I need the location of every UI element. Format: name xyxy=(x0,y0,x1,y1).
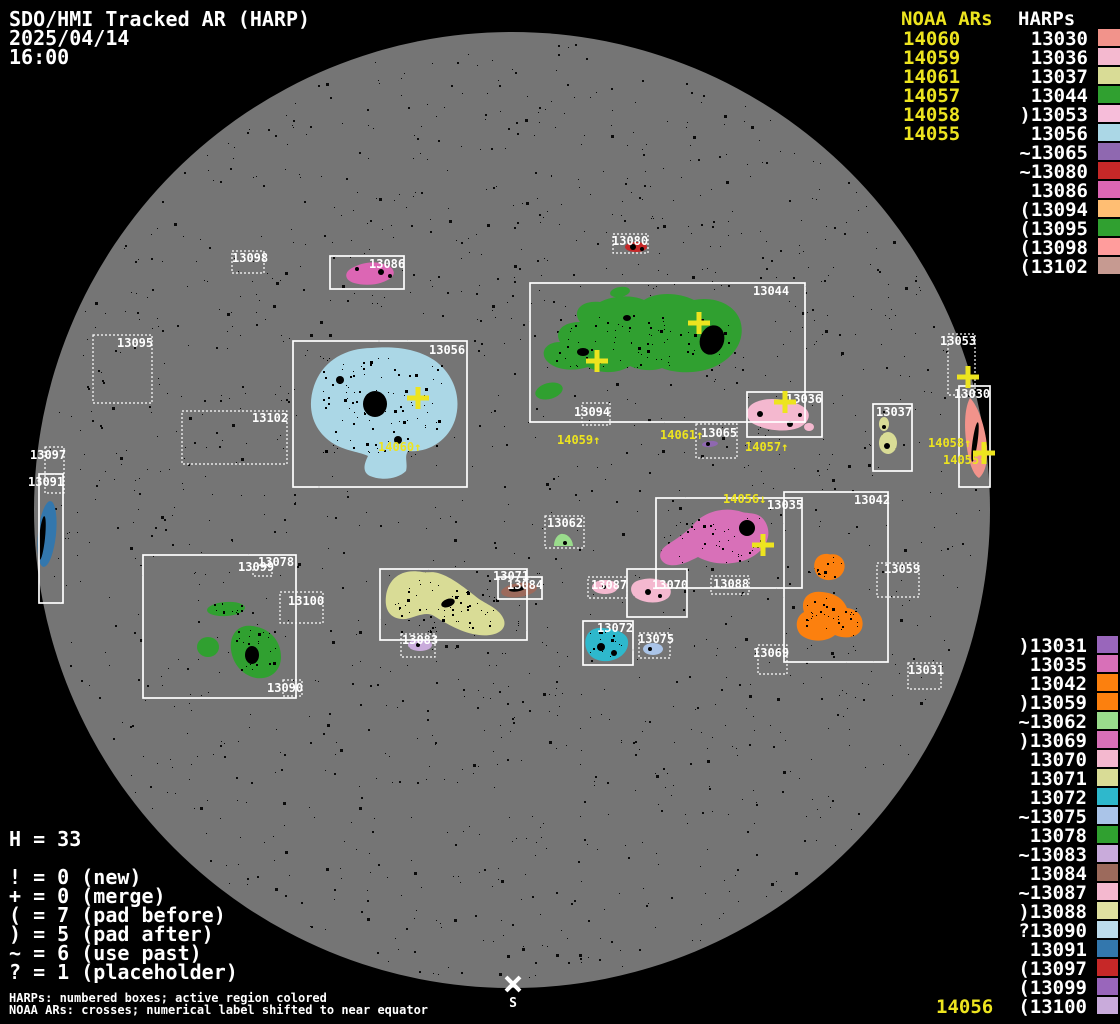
speckle xyxy=(487,224,490,227)
speckle xyxy=(641,444,642,445)
speckle xyxy=(105,313,106,314)
sunspot-speckle xyxy=(559,352,561,354)
speckle xyxy=(435,507,436,508)
speckle xyxy=(736,748,737,749)
speckle xyxy=(855,415,856,416)
speckle xyxy=(579,954,582,957)
speckle xyxy=(153,556,154,557)
speckle xyxy=(539,290,540,291)
sunspot-speckle xyxy=(719,541,720,542)
sunspot-speckle xyxy=(575,315,576,316)
speckle xyxy=(508,504,509,505)
speckle xyxy=(689,676,691,678)
sunspot-speckle xyxy=(433,379,434,380)
speckle xyxy=(413,274,415,276)
sunspot-speckle xyxy=(270,651,271,652)
speckle xyxy=(407,665,408,666)
sunspot-speckle xyxy=(363,362,365,364)
sunspot-speckle xyxy=(667,339,668,340)
speckle xyxy=(332,476,333,477)
speckle xyxy=(839,695,840,696)
speckle xyxy=(883,764,884,765)
speckle xyxy=(903,444,905,446)
speckle xyxy=(834,488,836,490)
speckle xyxy=(304,201,306,203)
sunspot-speckle xyxy=(273,662,276,665)
legend-swatch-13100 xyxy=(1097,997,1118,1014)
speckle xyxy=(377,952,379,954)
speckle xyxy=(324,235,326,237)
speckle xyxy=(468,238,469,239)
speckle xyxy=(724,115,727,118)
speckle xyxy=(920,290,921,291)
speckle xyxy=(479,872,480,873)
speckle xyxy=(515,72,517,74)
speckle xyxy=(547,627,548,628)
sunspot-speckle xyxy=(369,420,370,421)
speckle xyxy=(753,716,754,717)
speckle xyxy=(493,683,494,684)
speckle xyxy=(520,339,521,340)
speckle xyxy=(162,685,163,686)
speckle xyxy=(194,808,195,809)
speckle xyxy=(858,210,859,211)
speckle xyxy=(721,285,722,286)
speckle xyxy=(115,350,117,352)
speckle xyxy=(366,581,367,582)
sunspot-speckle xyxy=(409,620,410,621)
speckle xyxy=(442,315,444,317)
sunspot-speckle xyxy=(364,413,366,415)
speckle xyxy=(528,557,530,559)
speckle xyxy=(256,324,258,326)
speckle xyxy=(216,347,218,349)
speckle xyxy=(648,903,649,904)
sunspot-speckle xyxy=(676,525,677,526)
speckle xyxy=(586,58,588,60)
speckle xyxy=(680,522,681,523)
speckle xyxy=(676,681,678,683)
speckle xyxy=(817,470,819,472)
speckle xyxy=(896,591,897,592)
speckle xyxy=(546,645,547,646)
speckle xyxy=(502,653,503,654)
speckle xyxy=(367,918,370,921)
speckle xyxy=(263,185,265,187)
speckle xyxy=(532,524,533,525)
speckle xyxy=(519,605,520,606)
speckle xyxy=(790,771,791,772)
harp-label-13087: 13087 xyxy=(591,578,627,592)
sunspot-speckle xyxy=(637,367,638,368)
sunspot-speckle xyxy=(333,445,334,446)
speckle xyxy=(433,973,434,974)
speckle xyxy=(587,844,588,845)
sunspot-speckle xyxy=(432,403,433,404)
sunspot-speckle xyxy=(425,425,426,426)
speckle xyxy=(512,924,514,926)
sunspot-speckle xyxy=(660,330,663,333)
sunspot-speckle xyxy=(668,362,669,363)
speckle xyxy=(514,281,516,283)
speckle xyxy=(671,897,673,899)
speckle xyxy=(690,145,691,146)
speckle xyxy=(375,62,376,63)
speckle xyxy=(433,560,434,561)
sunspot-speckle xyxy=(238,631,240,633)
speckle xyxy=(201,695,202,696)
speckle xyxy=(514,227,516,229)
speckle xyxy=(878,467,879,468)
sunspot-speckle xyxy=(640,364,642,366)
speckle xyxy=(656,853,657,854)
speckle xyxy=(728,235,729,236)
speckle xyxy=(321,176,322,177)
speckle xyxy=(705,893,706,894)
speckle xyxy=(848,653,849,654)
speckle xyxy=(336,742,337,743)
sunspot-speckle xyxy=(456,590,458,592)
speckle xyxy=(411,456,412,457)
speckle xyxy=(865,767,866,768)
speckle xyxy=(539,122,540,123)
harp-label-13102: 13102 xyxy=(252,411,288,425)
harp-label-13100: 13100 xyxy=(288,594,324,608)
speckle xyxy=(726,181,729,184)
sunspot-speckle xyxy=(641,354,642,355)
speckle xyxy=(347,496,349,498)
speckle xyxy=(122,722,123,723)
sunspot-speckle xyxy=(679,556,680,557)
speckle xyxy=(886,367,888,369)
harp-label-13053: 13053 xyxy=(940,334,976,348)
sunspot-speckle xyxy=(427,412,428,413)
speckle xyxy=(538,112,539,113)
speckle xyxy=(750,684,751,685)
speckle xyxy=(252,612,254,614)
speckle xyxy=(472,466,473,467)
sunspot-speckle xyxy=(250,664,251,665)
speckle xyxy=(655,927,656,928)
speckle xyxy=(361,911,363,913)
speckle xyxy=(397,707,398,708)
speckle xyxy=(760,277,762,279)
speckle xyxy=(268,129,270,131)
speckle xyxy=(597,243,599,245)
speckle xyxy=(559,666,560,667)
sunspot-speckle xyxy=(481,610,482,611)
sunspot-speckle xyxy=(482,594,484,596)
speckle xyxy=(216,432,218,434)
speckle xyxy=(519,268,521,270)
sunspot-speckle xyxy=(599,317,600,318)
noaa-disk-label-14060: 14060↑ xyxy=(378,440,421,454)
sunspot-speckle xyxy=(403,421,406,424)
speckle xyxy=(493,751,494,752)
speckle xyxy=(228,652,229,653)
speckle xyxy=(597,467,598,468)
speckle xyxy=(581,694,582,695)
speckle xyxy=(754,823,755,824)
speckle xyxy=(476,293,478,295)
speckle xyxy=(621,742,622,743)
speckle xyxy=(693,136,696,139)
speckle xyxy=(553,301,555,303)
speckle xyxy=(551,175,552,176)
speckle xyxy=(782,791,784,793)
speckle xyxy=(411,225,413,227)
speckle xyxy=(374,818,375,819)
speckle xyxy=(190,694,191,695)
speckle xyxy=(498,395,499,396)
sunspot-speckle xyxy=(467,591,469,593)
speckle xyxy=(789,301,790,302)
speckle xyxy=(565,306,566,307)
sunspot-speckle xyxy=(576,365,577,366)
sunspot-speckle xyxy=(269,633,270,634)
speckle xyxy=(567,84,569,86)
speckle xyxy=(188,345,189,346)
speckle xyxy=(930,492,931,493)
speckle xyxy=(858,813,860,815)
speckle xyxy=(638,264,639,265)
speckle xyxy=(475,915,477,917)
sunspot-speckle xyxy=(350,376,352,378)
speckle xyxy=(360,661,361,662)
speckle xyxy=(96,485,98,487)
sunspot xyxy=(658,594,662,598)
speckle xyxy=(891,596,892,597)
speckle xyxy=(441,927,442,928)
speckle xyxy=(813,161,814,162)
sunspot-speckle xyxy=(629,331,630,332)
speckle xyxy=(541,837,542,838)
speckle xyxy=(716,655,717,656)
speckle xyxy=(475,764,476,765)
speckle xyxy=(392,782,393,783)
sunspot-speckle xyxy=(444,610,445,611)
speckle xyxy=(456,645,459,648)
speckle xyxy=(221,741,222,742)
sunspot-speckle xyxy=(325,450,328,453)
speckle xyxy=(227,331,228,332)
speckle xyxy=(549,741,552,744)
speckle xyxy=(658,270,659,271)
speckle xyxy=(841,352,844,355)
speckle xyxy=(301,902,303,904)
speckle xyxy=(479,285,480,286)
speckle xyxy=(360,704,362,706)
speckle xyxy=(152,328,153,329)
speckle xyxy=(556,70,557,71)
speckle xyxy=(891,309,892,310)
speckle xyxy=(773,488,774,489)
sunspot-speckle xyxy=(658,330,659,331)
speckle xyxy=(853,296,854,297)
speckle xyxy=(556,954,559,957)
speckle xyxy=(607,782,609,784)
speckle xyxy=(430,231,432,233)
sunspot-speckle xyxy=(323,452,324,453)
sunspot-speckle xyxy=(602,651,603,652)
sunspot-speckle xyxy=(752,550,753,551)
sunspot-speckle xyxy=(332,384,334,386)
speckle xyxy=(653,288,654,289)
harp-label-13037: 13037 xyxy=(876,405,912,419)
speckle xyxy=(745,106,746,107)
speckle xyxy=(478,690,479,691)
speckle xyxy=(606,268,607,269)
speckle xyxy=(745,638,748,641)
speckle xyxy=(556,688,557,689)
speckle xyxy=(447,170,448,171)
sunspot-speckle xyxy=(633,315,635,317)
speckle xyxy=(511,318,512,319)
speckle xyxy=(518,623,519,624)
speckle xyxy=(801,220,802,221)
speckle xyxy=(579,500,580,501)
speckle xyxy=(496,665,497,666)
speckle xyxy=(769,662,770,663)
sunspot-speckle xyxy=(487,589,488,590)
speckle xyxy=(172,767,173,768)
harps-header: HARPs xyxy=(1018,8,1075,30)
harp-label-13099: 13099 xyxy=(238,560,274,574)
speckle xyxy=(514,553,515,554)
speckle xyxy=(670,384,672,386)
speckle xyxy=(532,816,533,817)
speckle xyxy=(394,200,395,201)
sunspot-speckle xyxy=(469,627,470,628)
sunspot-speckle xyxy=(578,342,579,343)
harp-label-13035: 13035 xyxy=(767,498,803,512)
speckle xyxy=(198,659,199,660)
sunspot-speckle xyxy=(417,418,418,419)
speckle xyxy=(794,468,795,469)
speckle xyxy=(238,741,239,742)
speckle xyxy=(561,204,562,205)
speckle xyxy=(380,525,382,527)
speckle xyxy=(553,478,555,480)
sunspot-speckle xyxy=(469,622,471,624)
speckle xyxy=(415,454,416,455)
speckle xyxy=(158,378,159,379)
speckle xyxy=(803,251,804,252)
legend-swatch-13087 xyxy=(1097,883,1118,900)
speckle xyxy=(99,480,100,481)
speckle xyxy=(421,192,423,194)
legend-swatch-13083 xyxy=(1097,845,1118,862)
speckle xyxy=(690,160,691,161)
sunspot-speckle xyxy=(467,609,469,611)
sunspot-speckle xyxy=(647,343,649,345)
speckle xyxy=(543,416,544,417)
speckle xyxy=(821,698,823,700)
speckle xyxy=(227,313,230,316)
speckle xyxy=(559,706,560,707)
sunspot-speckle xyxy=(335,431,337,433)
sunspot xyxy=(336,376,344,384)
speckle xyxy=(351,240,352,241)
sunspot-speckle xyxy=(323,391,324,392)
speckle xyxy=(645,721,646,722)
speckle xyxy=(164,519,166,521)
speckle xyxy=(728,221,729,222)
speckle xyxy=(832,479,835,482)
sunspot-speckle xyxy=(817,571,818,572)
harp-label-13095: 13095 xyxy=(117,336,153,350)
speckle xyxy=(931,392,932,393)
speckle xyxy=(207,800,208,801)
speckle xyxy=(493,187,495,189)
speckle xyxy=(803,683,804,684)
speckle xyxy=(700,195,701,196)
speckle xyxy=(568,962,570,964)
sunspot-speckle xyxy=(820,611,822,613)
speckle xyxy=(758,429,759,430)
speckle xyxy=(457,62,459,64)
speckle xyxy=(792,606,795,609)
speckle xyxy=(183,236,184,237)
sunspot-speckle xyxy=(680,334,682,336)
speckle xyxy=(819,454,820,455)
speckle xyxy=(448,967,449,968)
speckle xyxy=(352,683,354,685)
speckle xyxy=(808,267,809,268)
sunspot-speckle xyxy=(650,327,652,329)
speckle xyxy=(916,294,917,295)
sunspot-speckle xyxy=(232,611,233,612)
sunspot-speckle xyxy=(732,551,733,552)
speckle xyxy=(133,522,134,523)
speckle xyxy=(275,394,276,395)
speckle xyxy=(899,673,900,674)
speckle xyxy=(561,930,562,931)
speckle xyxy=(200,807,203,810)
speckle xyxy=(868,684,869,685)
harp-label-13062: 13062 xyxy=(547,516,583,530)
speckle xyxy=(637,659,638,660)
speckle xyxy=(436,116,437,117)
sunspot-speckle xyxy=(214,604,216,606)
sunspot-speckle xyxy=(354,412,355,413)
sunspot xyxy=(623,315,631,321)
speckle xyxy=(81,680,83,682)
sunspot-speckle xyxy=(826,606,828,608)
sunspot-speckle xyxy=(621,645,622,646)
sunspot-speckle xyxy=(493,610,494,611)
speckle xyxy=(499,973,502,976)
speckle xyxy=(513,205,514,206)
speckle xyxy=(888,297,889,298)
speckle xyxy=(501,880,504,883)
speckle xyxy=(220,181,222,183)
speckle xyxy=(726,154,727,155)
speckle xyxy=(761,471,762,472)
speckle xyxy=(557,652,558,653)
ar-blob-13037 xyxy=(879,432,897,454)
sunspot-speckle xyxy=(567,346,569,348)
speckle xyxy=(194,442,196,444)
sunspot-speckle xyxy=(614,342,615,343)
speckle xyxy=(283,448,284,449)
speckle xyxy=(593,594,594,595)
speckle xyxy=(694,646,695,647)
speckle xyxy=(493,941,494,942)
speckle xyxy=(661,418,662,419)
speckle xyxy=(807,648,808,649)
sunspot-speckle xyxy=(432,627,434,629)
